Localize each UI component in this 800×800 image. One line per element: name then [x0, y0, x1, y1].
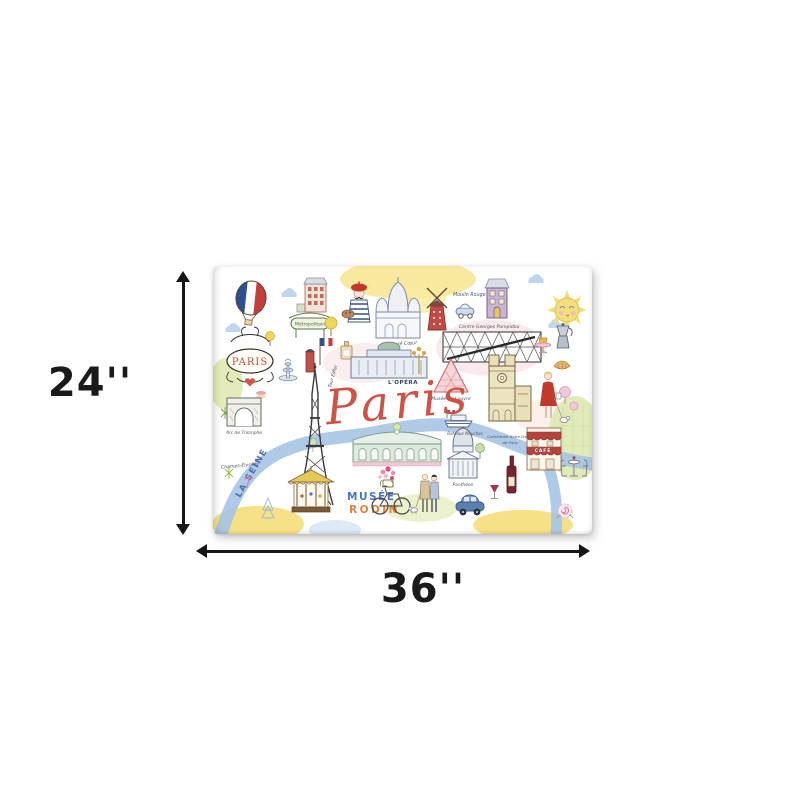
- carousel: [288, 466, 334, 512]
- la-seine-label: LA SEINE: [234, 447, 270, 500]
- height-arrow: [176, 271, 190, 535]
- fountain: [279, 359, 297, 381]
- paris-map-canvas-art: LA SEINE: [213, 266, 592, 534]
- arrow-down-icon: [176, 524, 190, 535]
- morris-column: [305, 349, 315, 372]
- croissant: [554, 361, 570, 369]
- hot-air-balloon: [233, 280, 267, 327]
- wine-bottle: [507, 456, 516, 493]
- moulin-rouge-label: Moulin Rouge: [453, 292, 486, 298]
- purple-building: [485, 279, 509, 318]
- arc-de-triomphe-label: Arc de Triomphe: [225, 430, 262, 436]
- width-arrow-line: [203, 550, 583, 553]
- wine-glass: [490, 485, 499, 499]
- width-dimension-label: 36'': [358, 566, 488, 612]
- blue-sedan: [456, 495, 484, 515]
- width-arrow: [196, 544, 590, 558]
- pompidou-label: Centre Georges Pompidou: [459, 324, 520, 330]
- product-dimension-view: 24'' 36'': [0, 0, 800, 800]
- bateaux-mouches-label: Bateaux Mouches: [447, 431, 483, 436]
- arrow-right-icon: [579, 544, 590, 558]
- height-dimension-label: 24'': [25, 360, 155, 406]
- sun-with-face: [547, 290, 587, 330]
- notre-dame-label-1: Cathédrale Notre Dame: [487, 434, 533, 439]
- metropolitain-label: Métropolitain: [295, 321, 325, 328]
- musee-label: MUSÉE: [347, 490, 395, 503]
- metropolitain-sign: Métropolitain: [289, 313, 331, 338]
- notre-dame-label-2: de Paris: [502, 440, 517, 445]
- french-artist: [342, 282, 371, 324]
- height-arrow-line: [182, 278, 185, 528]
- paris-sign-label: PARIS: [232, 357, 268, 368]
- pantheon-label: Panthéon: [453, 481, 474, 488]
- pink-building: [297, 278, 327, 312]
- arc-de-triomphe: Arc de Triomphe: [225, 398, 262, 436]
- cafe: CAFÉ: [527, 428, 561, 470]
- moka-pot: [557, 323, 572, 348]
- small-car-top: [456, 304, 474, 318]
